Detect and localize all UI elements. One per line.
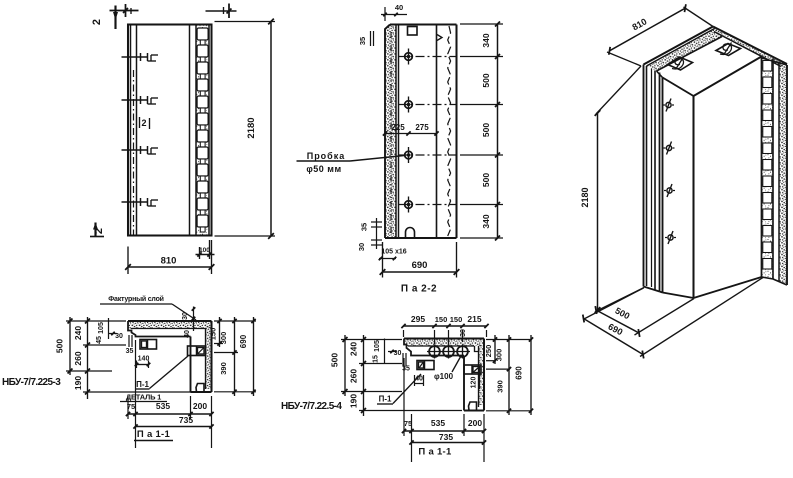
svg-text:500: 500: [481, 123, 491, 137]
svg-text:П а 1-1: П а 1-1: [137, 429, 171, 440]
svg-text:535: 535: [431, 418, 445, 428]
svg-text:500: 500: [481, 173, 491, 187]
svg-text:300: 300: [219, 332, 228, 345]
svg-text:300: 300: [495, 349, 504, 362]
svg-text:120: 120: [471, 377, 478, 389]
svg-text:200: 200: [193, 401, 207, 411]
svg-text:2: 2: [91, 19, 103, 25]
svg-text:100: 100: [199, 247, 210, 254]
svg-text:250: 250: [484, 345, 493, 358]
svg-text:75: 75: [404, 419, 412, 428]
svg-text:240: 240: [73, 326, 83, 340]
svg-text:НБУ-7/7.22.5-4: НБУ-7/7.22.5-4: [281, 401, 342, 412]
svg-text:35: 35: [126, 348, 134, 355]
svg-text:35: 35: [402, 366, 410, 373]
svg-text:30: 30: [460, 329, 467, 337]
svg-text:690: 690: [412, 260, 428, 271]
svg-text:200: 200: [468, 418, 482, 428]
svg-text:500: 500: [481, 73, 491, 87]
svg-text:390: 390: [219, 362, 228, 375]
svg-text:35: 35: [360, 223, 369, 231]
svg-text:690: 690: [239, 334, 248, 348]
svg-text:75: 75: [127, 402, 135, 411]
svg-text:П-1: П-1: [136, 380, 149, 389]
svg-text:735: 735: [439, 432, 453, 442]
svg-text:140: 140: [138, 356, 150, 363]
svg-text:340: 340: [481, 214, 491, 228]
svg-text:535: 535: [156, 401, 170, 411]
svg-text:45: 45: [96, 336, 103, 344]
svg-text:390: 390: [496, 380, 505, 393]
svg-text:2: 2: [141, 118, 146, 128]
svg-text:П а 2-2: П а 2-2: [401, 284, 437, 295]
svg-text:500: 500: [55, 339, 65, 353]
svg-text:240: 240: [349, 342, 359, 356]
svg-text:35: 35: [358, 37, 367, 45]
svg-text:φ50 мм: φ50 мм: [306, 164, 341, 174]
svg-text:30: 30: [182, 312, 189, 320]
svg-text:40: 40: [395, 3, 403, 12]
svg-text:15: 15: [373, 355, 380, 363]
svg-text:2180: 2180: [246, 117, 257, 138]
svg-text:30: 30: [357, 243, 366, 251]
svg-text:340: 340: [481, 33, 491, 47]
svg-text:735: 735: [179, 415, 193, 425]
svg-text:150: 150: [450, 315, 463, 324]
svg-text:НБУ-7/7.225-3: НБУ-7/7.225-3: [2, 377, 61, 388]
svg-text:40: 40: [184, 330, 191, 338]
svg-text:190: 190: [349, 394, 359, 408]
svg-text:690: 690: [515, 366, 524, 380]
svg-text:П-1: П-1: [379, 395, 392, 404]
svg-text:150: 150: [435, 315, 448, 324]
svg-text:295: 295: [411, 314, 425, 324]
svg-text:2: 2: [93, 228, 105, 234]
svg-text:φ100: φ100: [434, 372, 454, 381]
svg-text:105: 105: [98, 322, 105, 334]
svg-text:215: 215: [467, 314, 481, 324]
svg-text:105 х16: 105 х16: [381, 249, 406, 256]
svg-text:190: 190: [73, 376, 83, 390]
svg-text:Пробка: Пробка: [307, 151, 346, 161]
svg-text:225: 225: [391, 123, 405, 132]
svg-text:Фактурный слой: Фактурный слой: [108, 295, 164, 303]
svg-text:105: 105: [374, 340, 381, 352]
svg-text:2180: 2180: [580, 187, 590, 207]
svg-text:500: 500: [330, 353, 340, 367]
svg-text:П а 1-1: П а 1-1: [418, 447, 452, 458]
svg-text:275: 275: [415, 123, 429, 132]
svg-text:260: 260: [349, 369, 359, 383]
svg-text:150: 150: [209, 328, 218, 341]
svg-text:260: 260: [73, 351, 83, 365]
svg-text:810: 810: [161, 256, 177, 267]
